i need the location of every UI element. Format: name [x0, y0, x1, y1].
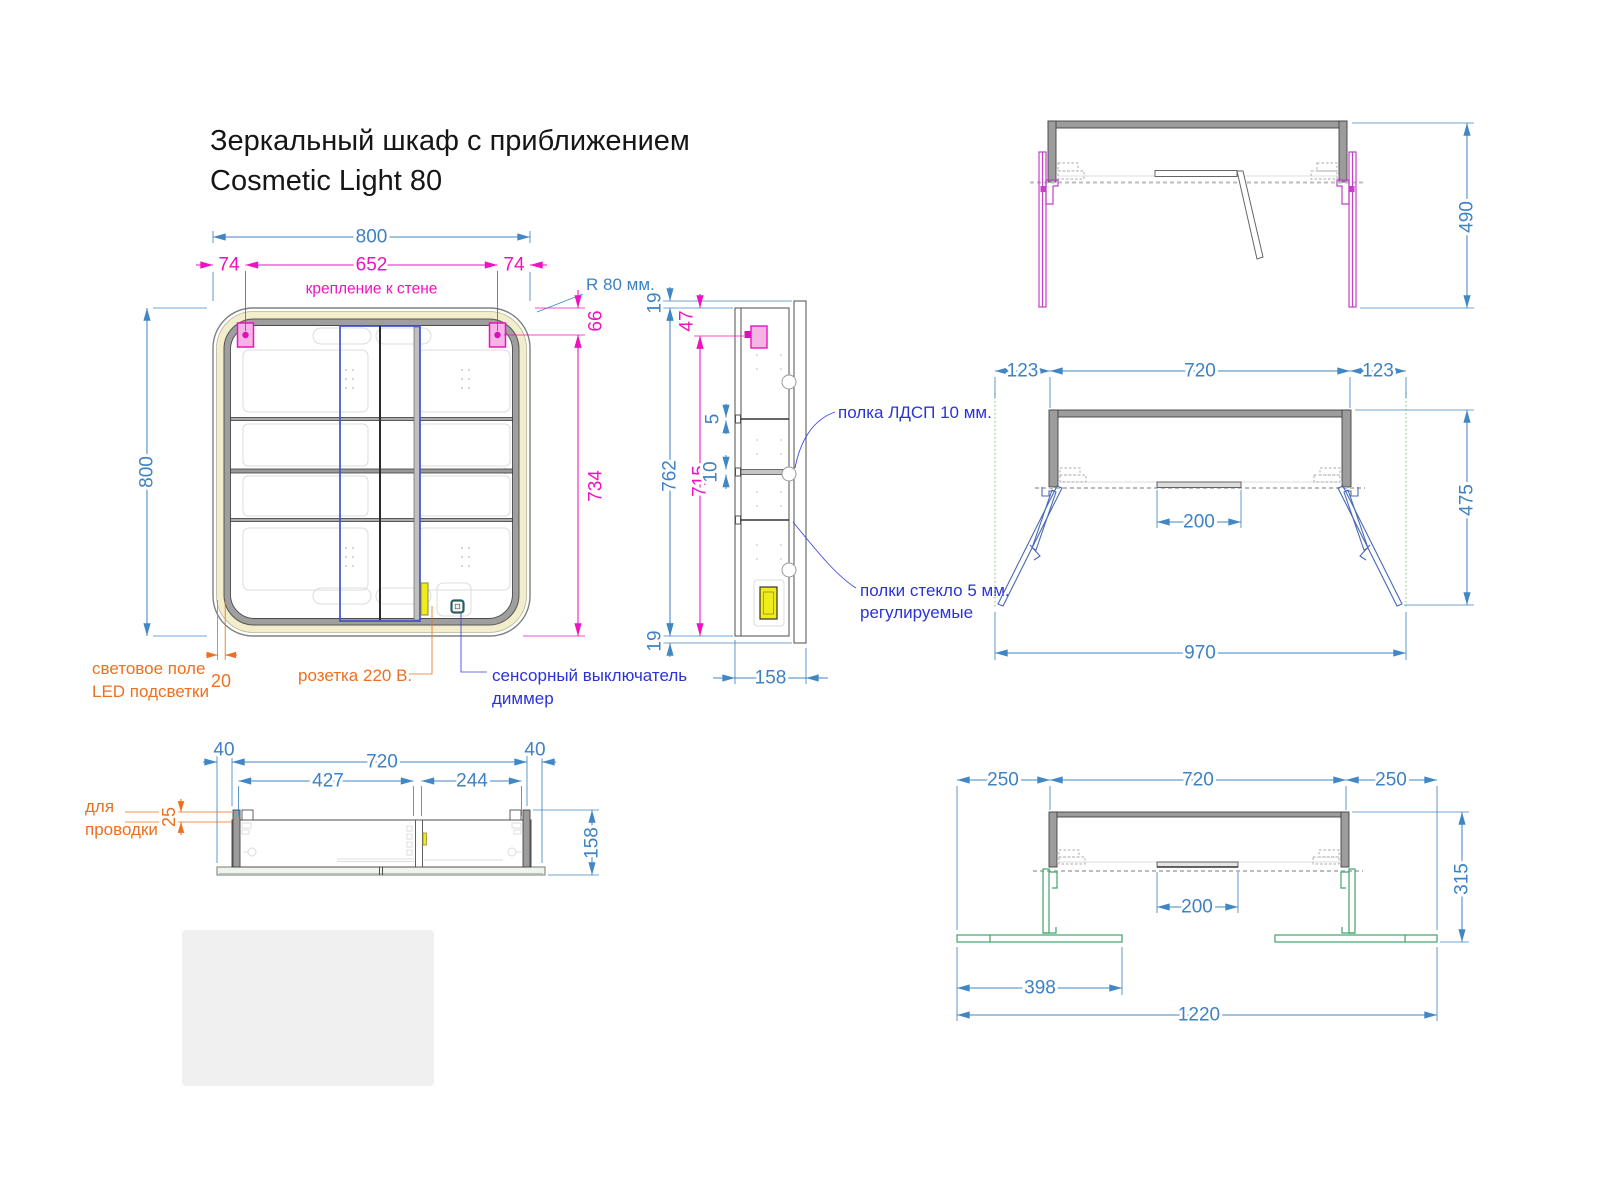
tv45-dim-side-right: 123: [1362, 361, 1394, 382]
tvw-door-strip: [1155, 171, 1237, 177]
bottom-view: 40 720 40 427 244 25 для проводки: [85, 740, 603, 876]
tvf-dim-recess-value: 200: [1181, 897, 1213, 918]
tvw-bracket-detail-left: [1058, 163, 1084, 179]
front-view: 800 74 652 74 крепление к стене R 80 мм.…: [92, 227, 687, 709]
tvf-dim-body: 720: [1182, 770, 1214, 791]
side-dim-depth-value: 158: [755, 668, 787, 689]
tv45-dim-depth-open: 475: [1457, 484, 1478, 516]
bv-dim-doors: 427 244: [239, 771, 522, 817]
tvf-leg-right: [1341, 869, 1355, 933]
bv-label-wiring-2: проводки: [85, 820, 158, 839]
front-note-radius: R 80 мм.: [537, 275, 655, 312]
bv-cap-left: [233, 810, 240, 867]
glass-shelf-bottom: [231, 519, 513, 522]
tvf-back-panel: [1051, 812, 1348, 817]
bv-label-wiring-1: для: [85, 797, 114, 816]
tvw-bracket-detail-right: [1311, 163, 1337, 179]
cable-hole-3: [782, 563, 796, 577]
front-label-switch-2: диммер: [492, 689, 554, 708]
tv45-dim-total-width: 970: [1184, 643, 1216, 664]
bv-cap-right: [523, 810, 530, 867]
page-title-line2: Cosmetic Light 80: [210, 165, 442, 197]
ldsp-shelf-middle: [231, 469, 513, 473]
side-view: 19 762 19 47 715 5 10: [645, 287, 1010, 689]
page-title-line1: Зеркальный шкаф с приближением: [210, 125, 690, 157]
front-dim-mount-to-bottom: 734: [586, 470, 607, 502]
tvf-side-left: [1049, 812, 1057, 867]
front-dim-mount-span: 652: [356, 255, 388, 276]
front-dim-top-to-mount: 66: [586, 310, 607, 331]
side-dim-shelf-thickness: 5 10: [701, 404, 727, 489]
side-dim-top-to-bracket: 47: [677, 310, 698, 331]
touch-dimmer-switch: [452, 601, 464, 613]
power-socket: [421, 583, 428, 615]
front-label-led-1: световое поле: [92, 659, 205, 678]
bv-dim-door-right: 244: [456, 771, 488, 792]
door-leaf-right-45: [1338, 486, 1402, 606]
top-view-wall-mount: 490: [1030, 121, 1478, 308]
top-view-doors-45: 123 720 123 200 475 970: [995, 361, 1478, 664]
bv-socket: [423, 833, 427, 845]
tv45-dim-side-left: 123: [1007, 361, 1039, 382]
front-dim-offset-left: 74: [218, 255, 240, 276]
bv-dim-body: 720: [366, 752, 398, 773]
tvf-dim-door-width: 398: [1024, 978, 1056, 999]
tvf-dim-depth: 315: [1352, 812, 1473, 942]
front-dim-width-total: 800: [356, 227, 388, 248]
tv45-dim-total: 970: [995, 612, 1406, 664]
front-dim-height: 800: [137, 308, 208, 636]
side-dim-depth: 158: [713, 640, 828, 689]
tvw-back-panel: [1048, 121, 1347, 128]
door-flat-right: [1275, 935, 1437, 942]
tvw-door-swung: [1237, 171, 1263, 259]
bv-dim-wiring-gap: 25: [159, 807, 179, 827]
tvw-dim-depth-open: 490: [1457, 201, 1478, 233]
front-dim-offset-right: 74: [503, 255, 525, 276]
cable-hole-2: [782, 467, 796, 481]
side-dim-ldsp-thickness: 10: [701, 461, 722, 482]
front-dim-height-total: 800: [137, 456, 158, 488]
front-label-switch-1: сенсорный выключатель: [492, 666, 687, 685]
side-label-ldsp: полка ЛДСП 10 мм.: [838, 403, 992, 422]
tvf-dim-side-right: 250: [1375, 770, 1407, 791]
title-block: Зеркальный шкаф с приближением Cosmetic …: [210, 125, 690, 197]
door-flat-left: [957, 935, 1122, 942]
tvf-leg-left: [1043, 869, 1057, 933]
front-label-led-2: LED подсветки: [92, 682, 209, 701]
bv-dim-wiring: 25 для проводки: [85, 797, 232, 839]
front-label-socket: розетка 220 В.: [298, 666, 412, 685]
side-dim-bottom-gap: 19: [645, 630, 666, 651]
glass-shelf-top: [231, 418, 513, 421]
bv-tab-left: [242, 810, 253, 820]
tvf-side-right: [1341, 812, 1349, 867]
side-dim-glass-thickness: 5: [703, 414, 724, 425]
bv-dim-overhang-left: 40: [213, 740, 234, 761]
tv45-dim-top-row: 123 720 123: [995, 361, 1406, 409]
tvf-dim-depth-value: 315: [1452, 863, 1473, 895]
tvf-dim-side-left: 250: [987, 770, 1019, 791]
drawing-page: Зеркальный шкаф с приближением Cosmetic …: [0, 0, 1600, 1200]
bv-dim-depth-value: 158: [582, 827, 603, 859]
tv45-side-left: [1049, 410, 1058, 487]
tv45-bracket-detail-left: [1060, 468, 1086, 482]
tvf-dim-recess: 200: [1157, 872, 1238, 918]
side-dim-body-height: 762: [660, 460, 681, 492]
side-label-glass-2: регулируемые: [860, 603, 973, 622]
tvw-side-right: [1339, 121, 1347, 182]
tv45-back-panel: [1050, 410, 1350, 417]
side-dim-top-gap: 19: [645, 292, 666, 313]
watermark-blob: [182, 930, 434, 1086]
bv-dim-overhang-right: 40: [524, 740, 545, 761]
tv45-recess-strip: [1157, 482, 1241, 488]
tv45-dim-depth: 475: [1355, 410, 1478, 605]
bv-dim-depth: 158: [533, 810, 603, 875]
side-label-glass-1: полки стекло 5 мм.: [860, 581, 1010, 600]
bv-center-divider: [416, 820, 423, 867]
technical-drawing: Зеркальный шкаф с приближением Cosmetic …: [0, 0, 1600, 1200]
tvf-dim-door: 398: [957, 947, 1122, 999]
door-slider-rail: [414, 327, 420, 620]
bv-tab-right: [510, 810, 521, 820]
tvw-side-left: [1048, 121, 1056, 182]
front-dim-led-width: 20: [211, 671, 231, 691]
top-view-doors-flat: 250 720 250 200 315 398 1220: [957, 770, 1473, 1026]
tvf-dim-total-width: 1220: [1178, 1005, 1220, 1026]
front-radius-label: R 80 мм.: [586, 275, 655, 294]
side-shelf-callouts: полка ЛДСП 10 мм. полки стекло 5 мм. рег…: [793, 403, 1010, 622]
tv45-dim-recess: 200: [1157, 490, 1241, 533]
bv-dim-door-left: 427: [312, 771, 344, 792]
tv45-side-right: [1342, 410, 1351, 487]
front-note-wall-mount: крепление к стене: [306, 281, 438, 298]
tvw-dim-490: 490: [1352, 123, 1478, 308]
cable-hole-1: [782, 375, 796, 389]
tv45-dim-body: 720: [1184, 361, 1216, 382]
tv45-bracket-detail-right: [1314, 468, 1340, 482]
tv45-dim-recess-value: 200: [1183, 512, 1215, 533]
